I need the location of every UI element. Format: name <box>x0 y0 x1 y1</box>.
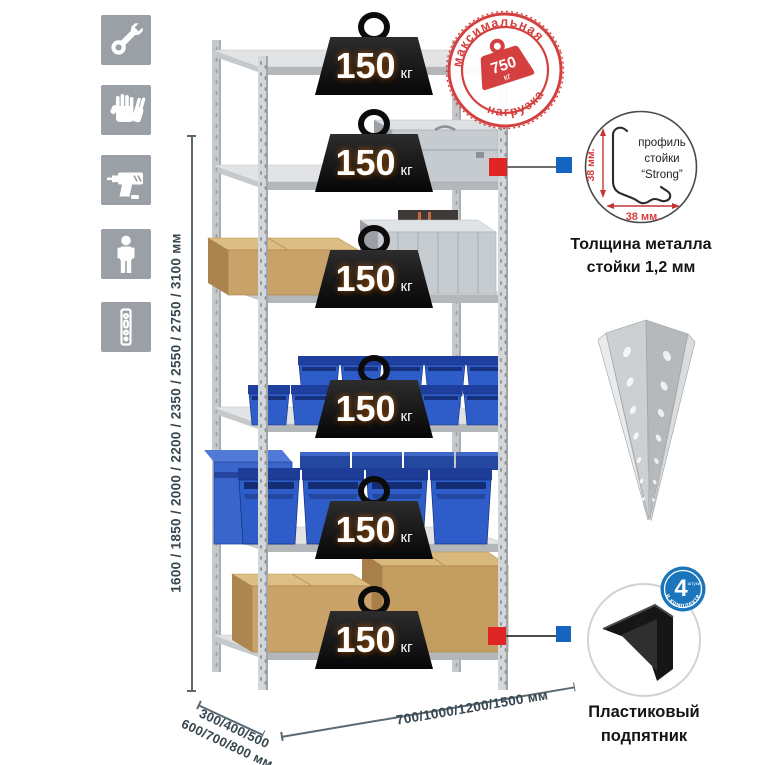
load-weight-badge: 150кг <box>315 109 433 192</box>
shelf-load-unit: кг <box>401 639 413 656</box>
badge-unit: штуки <box>688 581 701 586</box>
post-profile-diagram: 38 мм. 38 мм. профиль стойки “Strong” <box>583 109 699 225</box>
plastic-foot-caption: Пластиковый подпятник <box>561 701 727 749</box>
metal-thickness-caption: Толщина металла стойки 1,2 мм <box>558 233 724 279</box>
svg-text:профиль: профиль <box>638 137 686 149</box>
load-weight-badge: 150кг <box>315 12 433 95</box>
shelf-load-unit: кг <box>401 65 413 82</box>
shelf-load-unit: кг <box>401 162 413 179</box>
shelf-load-unit: кг <box>401 278 413 295</box>
load-weight-badge: 150кг <box>315 586 433 669</box>
infographic-canvas: 1600 / 1850 / 2000 / 2200 / 2350 / 2550 … <box>0 0 765 765</box>
shelf-load-value: 150 <box>335 261 395 297</box>
shelf-load-unit: кг <box>401 408 413 425</box>
callout-marker-blue <box>556 157 572 173</box>
callout-marker-red <box>489 158 507 176</box>
shelf-load-value: 150 <box>335 145 395 181</box>
callout-line <box>506 635 556 637</box>
plastic-foot-image <box>603 605 673 681</box>
svg-text:38 мм.: 38 мм. <box>585 148 597 181</box>
shelf-load-value: 150 <box>335 512 395 548</box>
svg-text:“Strong”: “Strong” <box>641 169 683 181</box>
load-weight-badge: 150кг <box>315 355 433 438</box>
rack-side-beams <box>217 55 260 655</box>
badge-count: 4 <box>674 575 688 602</box>
callout-line <box>507 166 557 168</box>
angle-post-image <box>598 320 695 521</box>
load-weight-badge: 150кг <box>315 476 433 559</box>
callout-marker-blue <box>556 626 571 642</box>
callout-marker-red <box>488 627 506 645</box>
shelf-load-unit: кг <box>401 529 413 546</box>
included-count-badge: 4 штуки в комплекте <box>660 566 706 612</box>
shelf-load-value: 150 <box>335 622 395 658</box>
svg-text:38 мм.: 38 мм. <box>626 211 661 223</box>
shelf-load-value: 150 <box>335 48 395 84</box>
svg-text:стойки: стойки <box>644 153 679 165</box>
load-weight-badge: 150кг <box>315 225 433 308</box>
shelf-load-value: 150 <box>335 391 395 427</box>
profile-label: профиль стойки “Strong” <box>638 137 686 181</box>
